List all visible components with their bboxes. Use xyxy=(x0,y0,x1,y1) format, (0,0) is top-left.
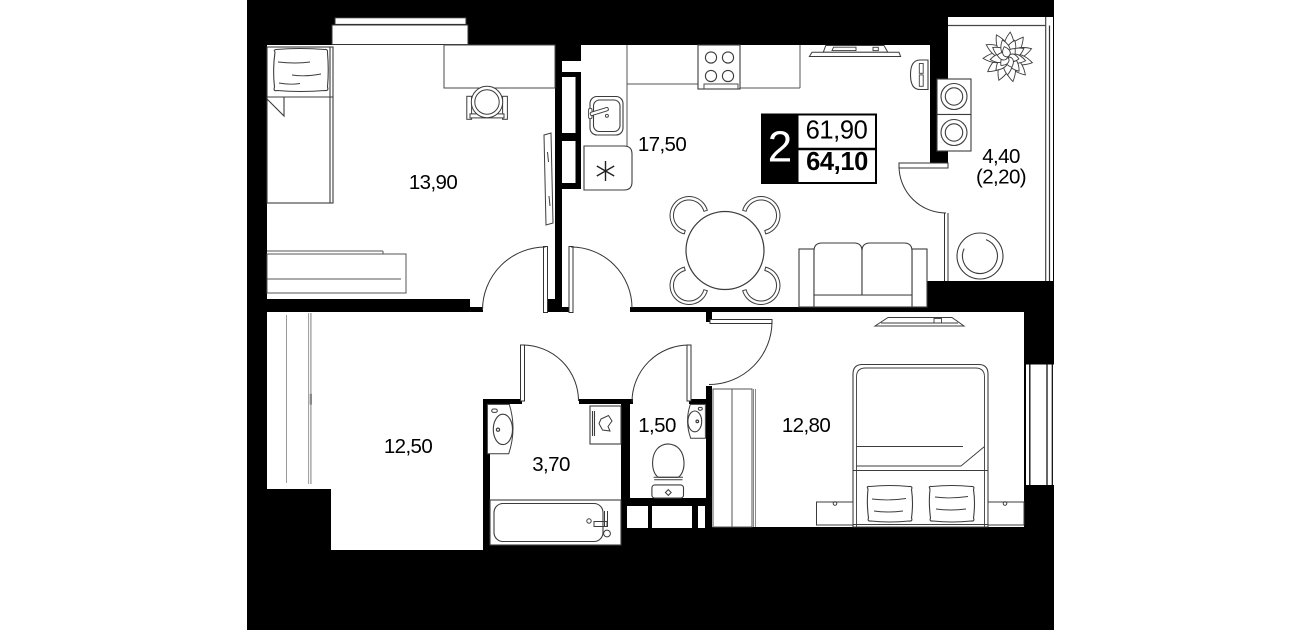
svg-text:1,50: 1,50 xyxy=(638,414,676,437)
svg-text:12,80: 12,80 xyxy=(782,414,830,437)
svg-text:64,10: 64,10 xyxy=(806,148,868,176)
svg-text:(2,20): (2,20) xyxy=(976,166,1026,189)
svg-text:17,50: 17,50 xyxy=(638,133,686,156)
svg-text:2: 2 xyxy=(768,123,792,172)
svg-text:61,90: 61,90 xyxy=(806,117,868,145)
svg-text:3,70: 3,70 xyxy=(532,453,570,476)
svg-text:12,50: 12,50 xyxy=(384,435,432,458)
svg-text:13,90: 13,90 xyxy=(409,171,457,194)
